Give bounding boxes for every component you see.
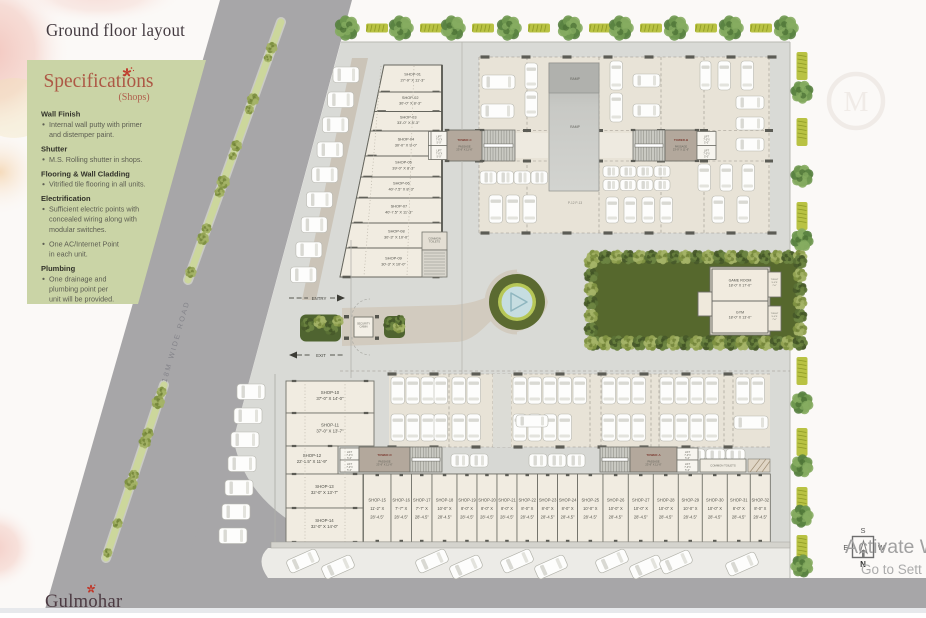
svg-text:SHOP-09: SHOP-09 [385, 256, 402, 261]
svg-text:M: M [844, 87, 869, 118]
svg-text:LIFT: LIFT [704, 148, 710, 152]
svg-text:SHOP-16: SHOP-16 [392, 497, 410, 502]
svg-text:37'-0" X 13'-7": 37'-0" X 13'-7" [316, 428, 344, 433]
svg-text:LIFT: LIFT [347, 462, 353, 466]
svg-text:TOWER-D: TOWER-D [377, 453, 392, 457]
svg-text:SHOP-10: SHOP-10 [321, 390, 340, 395]
svg-text:TOWER-A: TOWER-A [646, 453, 661, 457]
svg-text:TOWER-C: TOWER-C [457, 138, 472, 142]
svg-text:SHOP-11: SHOP-11 [321, 423, 340, 428]
svg-text:5'-0": 5'-0" [704, 156, 709, 159]
svg-text:LIFT: LIFT [704, 134, 710, 138]
svg-text:SHOP-07: SHOP-07 [391, 204, 408, 209]
svg-text:32'-0" X 13'-7": 32'-0" X 13'-7" [311, 490, 339, 495]
svg-text:GYM: GYM [736, 311, 744, 315]
svg-text:modular switches.: modular switches. [49, 225, 107, 234]
svg-text:18'-0" X 13'-0": 18'-0" X 13'-0" [729, 315, 752, 319]
svg-text:5'-0": 5'-0" [437, 142, 442, 145]
svg-text:8'-0" X: 8'-0" X [481, 506, 493, 511]
svg-text:PASSAGE: PASSAGE [647, 459, 659, 463]
svg-text:SHOP-24: SHOP-24 [559, 497, 577, 502]
svg-text:ENTRY: ENTRY [312, 296, 327, 301]
svg-text:30'-0" X 9'-0": 30'-0" X 9'-0" [395, 142, 418, 147]
svg-text:SHOP-02: SHOP-02 [402, 95, 419, 100]
svg-text:18'-0" X 17'-0": 18'-0" X 17'-0" [729, 283, 752, 287]
svg-text:10'-0" X: 10'-0" X [437, 506, 452, 511]
svg-text:EXIT: EXIT [316, 353, 326, 358]
svg-text:SHOP-04: SHOP-04 [398, 137, 415, 142]
svg-text:Sufficient electric points wit: Sufficient electric points with [49, 204, 139, 213]
svg-text:LIFT: LIFT [436, 134, 442, 138]
svg-text:10'-0" X: 10'-0" X [683, 506, 698, 511]
svg-text:Plumbing: Plumbing [41, 264, 76, 273]
svg-text:8'-0" X: 8'-0" X [562, 506, 574, 511]
svg-text:SHOP-28: SHOP-28 [657, 497, 675, 502]
svg-text:(Shops): (Shops) [118, 92, 149, 103]
svg-text:TOILET: TOILET [771, 313, 779, 315]
svg-text:5'-0": 5'-0" [685, 457, 690, 460]
svg-text:LIFT: LIFT [347, 450, 353, 454]
svg-text:23'-9" X 11'-6": 23'-9" X 11'-6" [673, 148, 689, 152]
svg-text:Activate W: Activate W [845, 536, 926, 558]
svg-text:Gulmohar: Gulmohar [45, 592, 122, 612]
svg-text:SHOP-13: SHOP-13 [315, 484, 334, 489]
svg-text:22'-1.5" X 11'-9": 22'-1.5" X 11'-9" [297, 459, 328, 464]
svg-text:Flooring & Wall Cladding: Flooring & Wall Cladding [41, 169, 130, 178]
svg-text:SHOP-05: SHOP-05 [395, 160, 412, 165]
svg-text:28'-4.5": 28'-4.5" [500, 515, 514, 520]
svg-text:unit will be provided.: unit will be provided. [49, 295, 114, 304]
svg-text:SHOP-19: SHOP-19 [458, 497, 476, 502]
svg-text:7'-7" X: 7'-7" X [395, 506, 407, 511]
svg-text:SHOP-29: SHOP-29 [682, 497, 700, 502]
svg-text:8'-0" X: 8'-0" X [501, 506, 513, 511]
svg-text:COMMON TOILETS: COMMON TOILETS [710, 464, 736, 468]
svg-text:28'-4.5": 28'-4.5" [561, 515, 575, 520]
svg-text:10'-0" X: 10'-0" X [583, 506, 598, 511]
svg-text:11'-2" X: 11'-2" X [370, 506, 384, 511]
svg-text:RAMP: RAMP [570, 125, 581, 129]
svg-text:37'-0" X 14'-0": 37'-0" X 14'-0" [316, 396, 344, 401]
svg-text:5'-0": 5'-0" [685, 469, 690, 472]
svg-text:Vitrified tile flooring in all: Vitrified tile flooring in all units. [49, 180, 146, 189]
svg-text:28'-4.5": 28'-4.5" [460, 515, 474, 520]
svg-text:SHOP-01: SHOP-01 [404, 72, 421, 77]
svg-text:28'-4.5": 28'-4.5" [415, 515, 429, 520]
svg-text:SHOP-26: SHOP-26 [607, 497, 625, 502]
svg-text:in each unit.: in each unit. [49, 250, 88, 259]
svg-text:28'-4.5": 28'-4.5" [394, 515, 408, 520]
svg-text:M.S. Rolling shutter in shops.: M.S. Rolling shutter in shops. [49, 155, 142, 164]
svg-text:23'-9" X 11'-6": 23'-9" X 11'-6" [376, 463, 392, 467]
svg-text:SHOP-25: SHOP-25 [582, 497, 600, 502]
svg-text:One AC/Internet Point: One AC/Internet Point [49, 239, 119, 248]
svg-text:Specifications: Specifications [44, 70, 154, 92]
svg-text:8'-0" X: 8'-0" X [461, 506, 473, 511]
svg-text:SHOP-31: SHOP-31 [730, 497, 748, 502]
svg-text:SHOP-23: SHOP-23 [539, 497, 557, 502]
svg-text:Ground floor layout: Ground floor layout [46, 20, 185, 40]
svg-text:GAME ROOM: GAME ROOM [729, 279, 752, 283]
svg-text:39'-0" X 8'-3": 39'-0" X 8'-3" [392, 165, 415, 170]
svg-text:SHOP-20: SHOP-20 [478, 497, 496, 502]
svg-text:TOWER-B: TOWER-B [674, 138, 689, 142]
svg-text:23'-9" X 11'-6": 23'-9" X 11'-6" [456, 148, 472, 152]
svg-text:Wall Finish: Wall Finish [41, 110, 81, 119]
svg-text:SHOP-30: SHOP-30 [706, 497, 724, 502]
svg-text:CABIN: CABIN [360, 325, 368, 329]
svg-text:40'-7.5" X 8'-3": 40'-7.5" X 8'-3" [388, 186, 414, 191]
svg-text:Shutter: Shutter [41, 145, 67, 154]
svg-text:28'-4.5": 28'-4.5" [370, 515, 384, 520]
svg-text:5'-0"X: 5'-0"X [772, 282, 778, 284]
svg-text:SHOP-08: SHOP-08 [388, 229, 405, 234]
svg-text:and distemper paint.: and distemper paint. [49, 130, 114, 139]
svg-text:28'-4.5": 28'-4.5" [609, 515, 623, 520]
svg-text:5'-0": 5'-0" [347, 469, 352, 472]
svg-text:RAMP: RAMP [570, 77, 581, 81]
svg-text:7'-7" X: 7'-7" X [416, 506, 428, 511]
svg-text:5'-0": 5'-0" [347, 457, 352, 460]
svg-text:SHOP-18: SHOP-18 [436, 497, 454, 502]
svg-text:PASSAGE: PASSAGE [458, 144, 470, 148]
svg-text:33'-0" X 8'-3": 33'-0" X 8'-3" [397, 120, 420, 125]
svg-text:8'-0" X: 8'-0" X [733, 506, 745, 511]
svg-text:10'-0" X: 10'-0" X [708, 506, 723, 511]
svg-text:30'-3" X 10'-0": 30'-3" X 10'-0" [381, 261, 406, 266]
svg-text:Go to Sett: Go to Sett [861, 562, 922, 577]
svg-text:7'-0": 7'-0" [772, 319, 777, 321]
svg-text:5'-0"X: 5'-0"X [772, 316, 778, 318]
svg-text:28'-4.5": 28'-4.5" [480, 515, 494, 520]
svg-text:28'-4.5": 28'-4.5" [438, 515, 452, 520]
svg-text:SHOP-22: SHOP-22 [519, 497, 537, 502]
svg-text:28'-4.5": 28'-4.5" [583, 515, 597, 520]
svg-text:SHOP-32: SHOP-32 [752, 497, 770, 502]
svg-text:5'-0": 5'-0" [704, 142, 709, 145]
svg-text:10'-0" X: 10'-0" X [659, 506, 674, 511]
svg-text:28'-4.5": 28'-4.5" [708, 515, 722, 520]
svg-text:LIFT: LIFT [436, 148, 442, 152]
svg-text:7'-0": 7'-0" [772, 285, 777, 287]
svg-text:8'-0" X: 8'-0" X [521, 506, 533, 511]
svg-text:10'-0" X: 10'-0" X [634, 506, 649, 511]
svg-text:SHOP-21: SHOP-21 [498, 497, 516, 502]
svg-text:TOILETS: TOILETS [429, 240, 440, 244]
svg-text:S: S [860, 526, 865, 535]
svg-text:10'-0" X: 10'-0" X [608, 506, 623, 511]
svg-text:30'-3" X 10'-0": 30'-3" X 10'-0" [384, 234, 409, 239]
svg-text:SHOP-17: SHOP-17 [413, 497, 431, 502]
svg-text:plumbing point per: plumbing point per [49, 285, 109, 294]
svg-text:PASSAGE: PASSAGE [378, 459, 390, 463]
svg-text:27'-9" X 11'-3": 27'-9" X 11'-3" [400, 77, 425, 82]
svg-text:28'-4.5": 28'-4.5" [541, 515, 555, 520]
svg-text:Electrification: Electrification [41, 194, 91, 203]
svg-text:23'-9" X 11'-6": 23'-9" X 11'-6" [645, 463, 661, 467]
svg-text:8'-0" X: 8'-0" X [542, 506, 554, 511]
svg-text:28'-4.5": 28'-4.5" [659, 515, 673, 520]
svg-text:32'-0" X 14'-0": 32'-0" X 14'-0" [311, 524, 339, 529]
svg-text:One drainage and: One drainage and [49, 274, 107, 283]
svg-text:TOILET: TOILET [771, 279, 779, 281]
svg-text:5'-0": 5'-0" [437, 156, 442, 159]
svg-text:8'-0" X: 8'-0" X [754, 506, 766, 511]
svg-text:Internal wall putty with prime: Internal wall putty with primer [49, 120, 143, 129]
svg-text:28'-4.5": 28'-4.5" [520, 515, 534, 520]
svg-text:28'-4.5": 28'-4.5" [753, 515, 767, 520]
svg-text:30'-0" X 8'-3": 30'-0" X 8'-3" [399, 101, 422, 106]
svg-text:28'-4.5": 28'-4.5" [732, 515, 746, 520]
svg-text:LIFT: LIFT [685, 462, 691, 466]
svg-text:P-12 P-13: P-12 P-13 [568, 201, 583, 205]
svg-text:LIFT: LIFT [685, 450, 691, 454]
svg-text:28'-4.5": 28'-4.5" [683, 515, 697, 520]
svg-text:SHOP-14: SHOP-14 [315, 518, 334, 523]
svg-text:concealed wiring along with: concealed wiring along with [49, 215, 137, 224]
svg-text:SHOP-27: SHOP-27 [632, 497, 650, 502]
svg-text:SHOP-12: SHOP-12 [303, 453, 322, 458]
svg-text:SHOP-03: SHOP-03 [400, 115, 417, 120]
svg-text:28'-4.5": 28'-4.5" [634, 515, 648, 520]
svg-text:SHOP-06: SHOP-06 [393, 181, 410, 186]
svg-text:PASSAGE: PASSAGE [675, 144, 687, 148]
svg-text:SHOP-15: SHOP-15 [368, 497, 386, 502]
